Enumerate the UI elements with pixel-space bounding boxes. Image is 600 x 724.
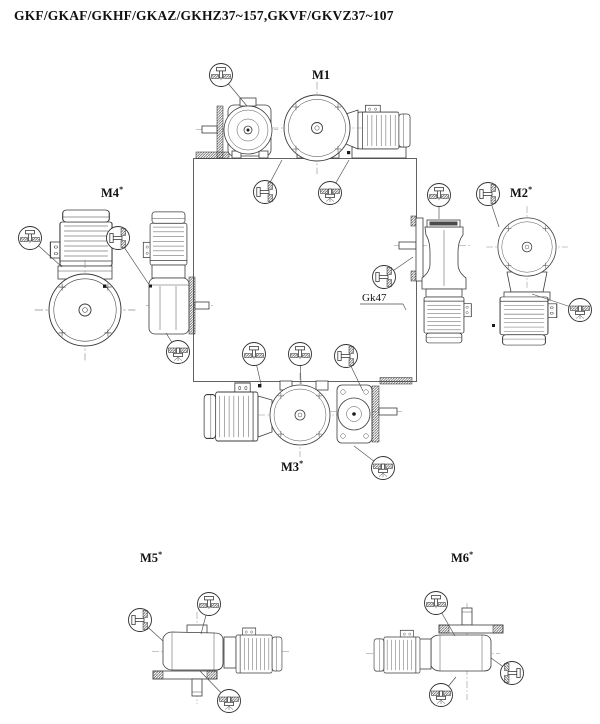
oil-plug-side-icon xyxy=(373,266,396,289)
label-m3: M3* xyxy=(281,459,303,474)
label-m2: M2* xyxy=(510,185,532,200)
oil-plug-bottom-icon xyxy=(167,341,190,364)
view-m3-side xyxy=(330,378,412,444)
label-m4: M4* xyxy=(101,185,123,200)
mounting-positions-diagram: M1 M2* M3* M4* M5* M6* Gk47 xyxy=(0,0,600,724)
oil-plug-side-icon xyxy=(254,181,277,204)
view-m4-side xyxy=(143,212,213,334)
view-m1-wall-side xyxy=(196,98,278,159)
label-m1: M1 xyxy=(312,68,330,82)
oil-plug-bottom-icon xyxy=(319,182,342,205)
view-m3-front xyxy=(204,373,342,457)
oil-plug-top-icon xyxy=(210,64,233,87)
view-m1-front xyxy=(271,82,410,174)
catalog-page: GKF/GKAF/GKHF/GKAZ/GKHZ37~157,GKVF/GKVZ3… xyxy=(0,0,600,724)
view-m5 xyxy=(152,612,290,704)
gk47-label: Gk47 xyxy=(362,292,387,304)
view-m2-side xyxy=(394,216,471,343)
oil-plug-side-icon xyxy=(129,609,152,632)
oil-plug-bottom-icon xyxy=(430,684,453,707)
oil-plug-side-icon xyxy=(335,345,358,368)
oil-plug-side-icon xyxy=(501,662,524,685)
oil-plug-bottom-icon xyxy=(372,457,395,480)
oil-plug-top-icon xyxy=(425,592,448,615)
oil-plug-top-icon xyxy=(243,343,266,366)
oil-plug-top-icon xyxy=(198,593,221,616)
label-m6: M6* xyxy=(451,550,473,565)
oil-plug-bottom-icon xyxy=(218,690,241,713)
oil-plug-side-icon xyxy=(477,183,500,206)
view-m2-front xyxy=(486,206,567,345)
oil-plug-top-icon xyxy=(428,184,451,207)
oil-plug-top-icon xyxy=(19,227,42,250)
gk47-callout: Gk47 xyxy=(360,292,406,310)
oil-plug-bottom-icon xyxy=(569,299,592,322)
oil-plug-side-icon xyxy=(107,227,130,250)
label-m5: M5* xyxy=(140,550,162,565)
oil-plug-top-icon xyxy=(289,343,312,366)
